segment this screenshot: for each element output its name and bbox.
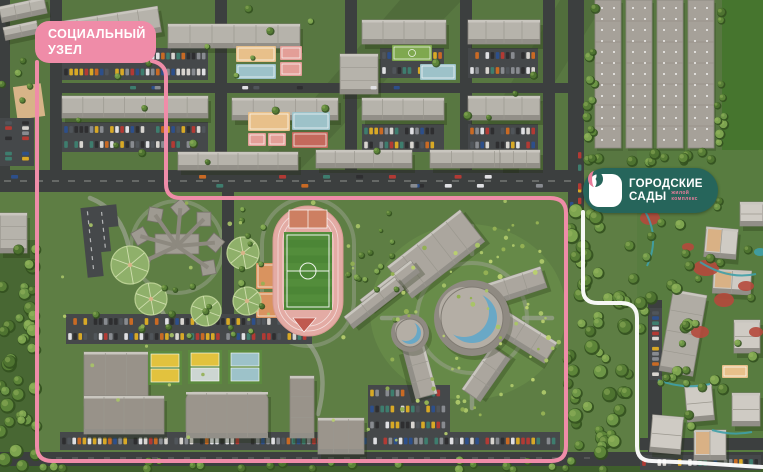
social-node-label-line1: СОЦИАЛЬНЫЙ xyxy=(48,26,156,42)
building xyxy=(468,20,543,49)
flower-garden xyxy=(693,260,719,276)
sports-court xyxy=(292,132,328,148)
logo-subtitle-line2: комплекс xyxy=(671,197,697,203)
parking-lot xyxy=(0,118,34,166)
building xyxy=(178,152,301,175)
building xyxy=(694,430,729,465)
building xyxy=(732,393,763,431)
building xyxy=(468,96,543,125)
building xyxy=(362,20,449,49)
building xyxy=(362,98,447,125)
social-node-label: СОЦИАЛЬНЫЙ УЗЕЛ xyxy=(35,21,156,63)
sports-court xyxy=(236,46,276,62)
developer-logo-badge: ГОРОДСКИЕ САДЫ жилой комплекс xyxy=(583,168,718,213)
building xyxy=(186,392,271,443)
building xyxy=(340,54,381,99)
parking-lot xyxy=(468,48,538,78)
sports-court xyxy=(268,133,286,146)
building xyxy=(290,376,317,443)
building xyxy=(649,415,687,460)
stadium xyxy=(273,206,343,336)
logo-name-line1: ГОРОДСКИЕ xyxy=(629,178,703,191)
sports-court xyxy=(722,365,748,378)
sports-court xyxy=(148,351,182,385)
building xyxy=(316,150,415,173)
building xyxy=(84,396,167,439)
sports-court xyxy=(248,112,290,131)
building xyxy=(318,418,367,459)
parking-lot xyxy=(62,122,208,152)
sports-court xyxy=(236,64,276,79)
sports-court xyxy=(188,350,222,384)
social-node-label-line2: УЗЕЛ xyxy=(48,42,156,58)
sports-court xyxy=(228,350,262,384)
sports-court xyxy=(280,62,302,76)
warehouse xyxy=(688,0,716,151)
warehouse xyxy=(626,0,654,151)
logo-name-line2: САДЫ xyxy=(629,191,666,203)
playground-circle xyxy=(227,237,259,269)
sports-court xyxy=(248,133,266,146)
sports-court xyxy=(280,46,302,60)
building xyxy=(740,202,763,231)
sports-court xyxy=(392,45,432,61)
warehouse xyxy=(657,0,685,151)
masterplan-render: СОЦИАЛЬНЫЙ УЗЕЛ ГОРОДСКИЕ САДЫ жилой ком… xyxy=(0,0,763,472)
parking-lot xyxy=(362,124,444,152)
parking-lot xyxy=(66,314,312,344)
playground-circle xyxy=(233,287,261,315)
parking-lot xyxy=(468,124,538,152)
sports-court xyxy=(292,112,330,130)
building xyxy=(62,96,211,123)
flower-garden xyxy=(749,327,763,337)
aerial-map xyxy=(0,0,763,472)
logo-subtitle: жилой комплекс xyxy=(671,191,697,203)
building xyxy=(500,150,543,173)
building xyxy=(734,320,763,358)
flower-garden xyxy=(714,293,734,307)
flower-garden xyxy=(738,281,754,291)
warehouse xyxy=(595,0,623,151)
logo-text: ГОРОДСКИЕ САДЫ жилой комплекс xyxy=(629,178,703,203)
playground-circle xyxy=(111,246,149,284)
logo-k-glyph xyxy=(583,168,605,190)
logo-icon xyxy=(589,174,622,207)
